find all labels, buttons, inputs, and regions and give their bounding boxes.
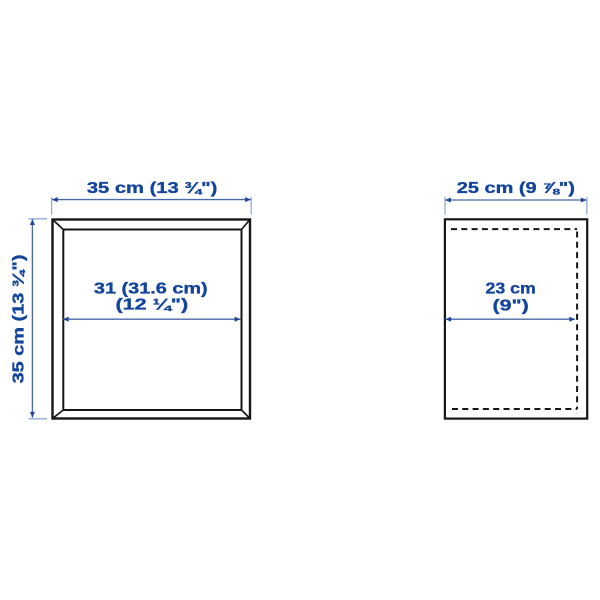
svg-text:(12 ¼"): (12 ¼") — [115, 296, 188, 313]
svg-text:25 cm (9 ⅞"): 25 cm (9 ⅞") — [457, 179, 575, 196]
svg-text:23 cm: 23 cm — [486, 279, 536, 297]
svg-text:35 cm (13 ¾"): 35 cm (13 ¾") — [10, 254, 27, 383]
svg-text:35 cm (13 ¾"): 35 cm (13 ¾") — [87, 179, 217, 196]
svg-text:31 (31.6 cm): 31 (31.6 cm) — [94, 280, 208, 297]
svg-text:(9"): (9") — [493, 296, 529, 313]
